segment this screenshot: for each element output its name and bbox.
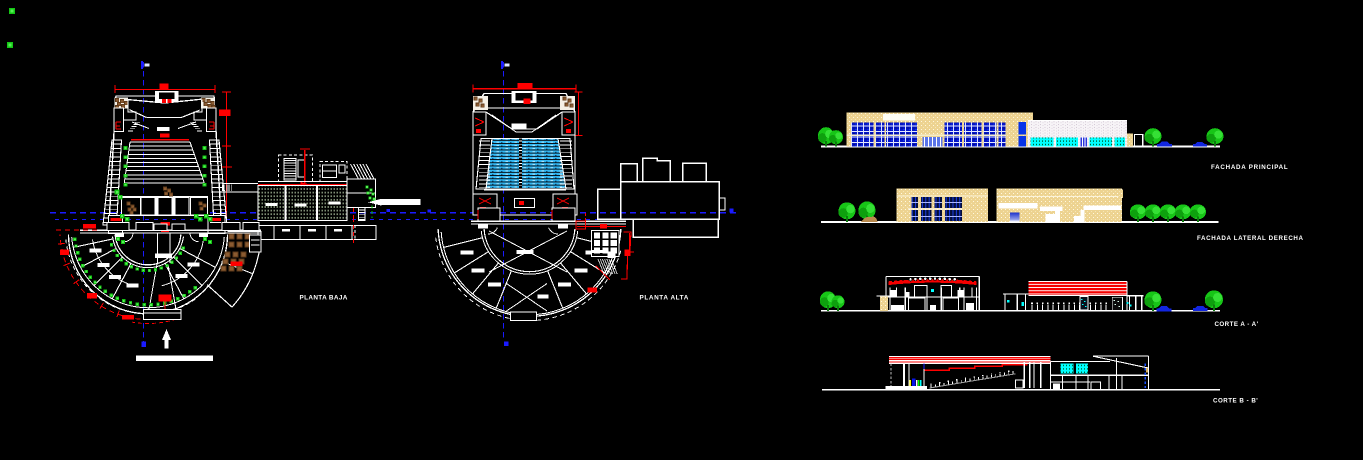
svg-text:PLANTA BAJA: PLANTA BAJA bbox=[300, 295, 348, 302]
svg-text:FACHADA PRINCIPAL: FACHADA PRINCIPAL bbox=[1211, 164, 1288, 171]
svg-text:FACHADA LATERAL DERECHA: FACHADA LATERAL DERECHA bbox=[1197, 235, 1304, 242]
svg-text:CORTE B - B': CORTE B - B' bbox=[1213, 397, 1258, 404]
svg-text:CORTE A - A': CORTE A - A' bbox=[1215, 321, 1259, 328]
svg-text:PLANTA ALTA: PLANTA ALTA bbox=[640, 294, 689, 301]
